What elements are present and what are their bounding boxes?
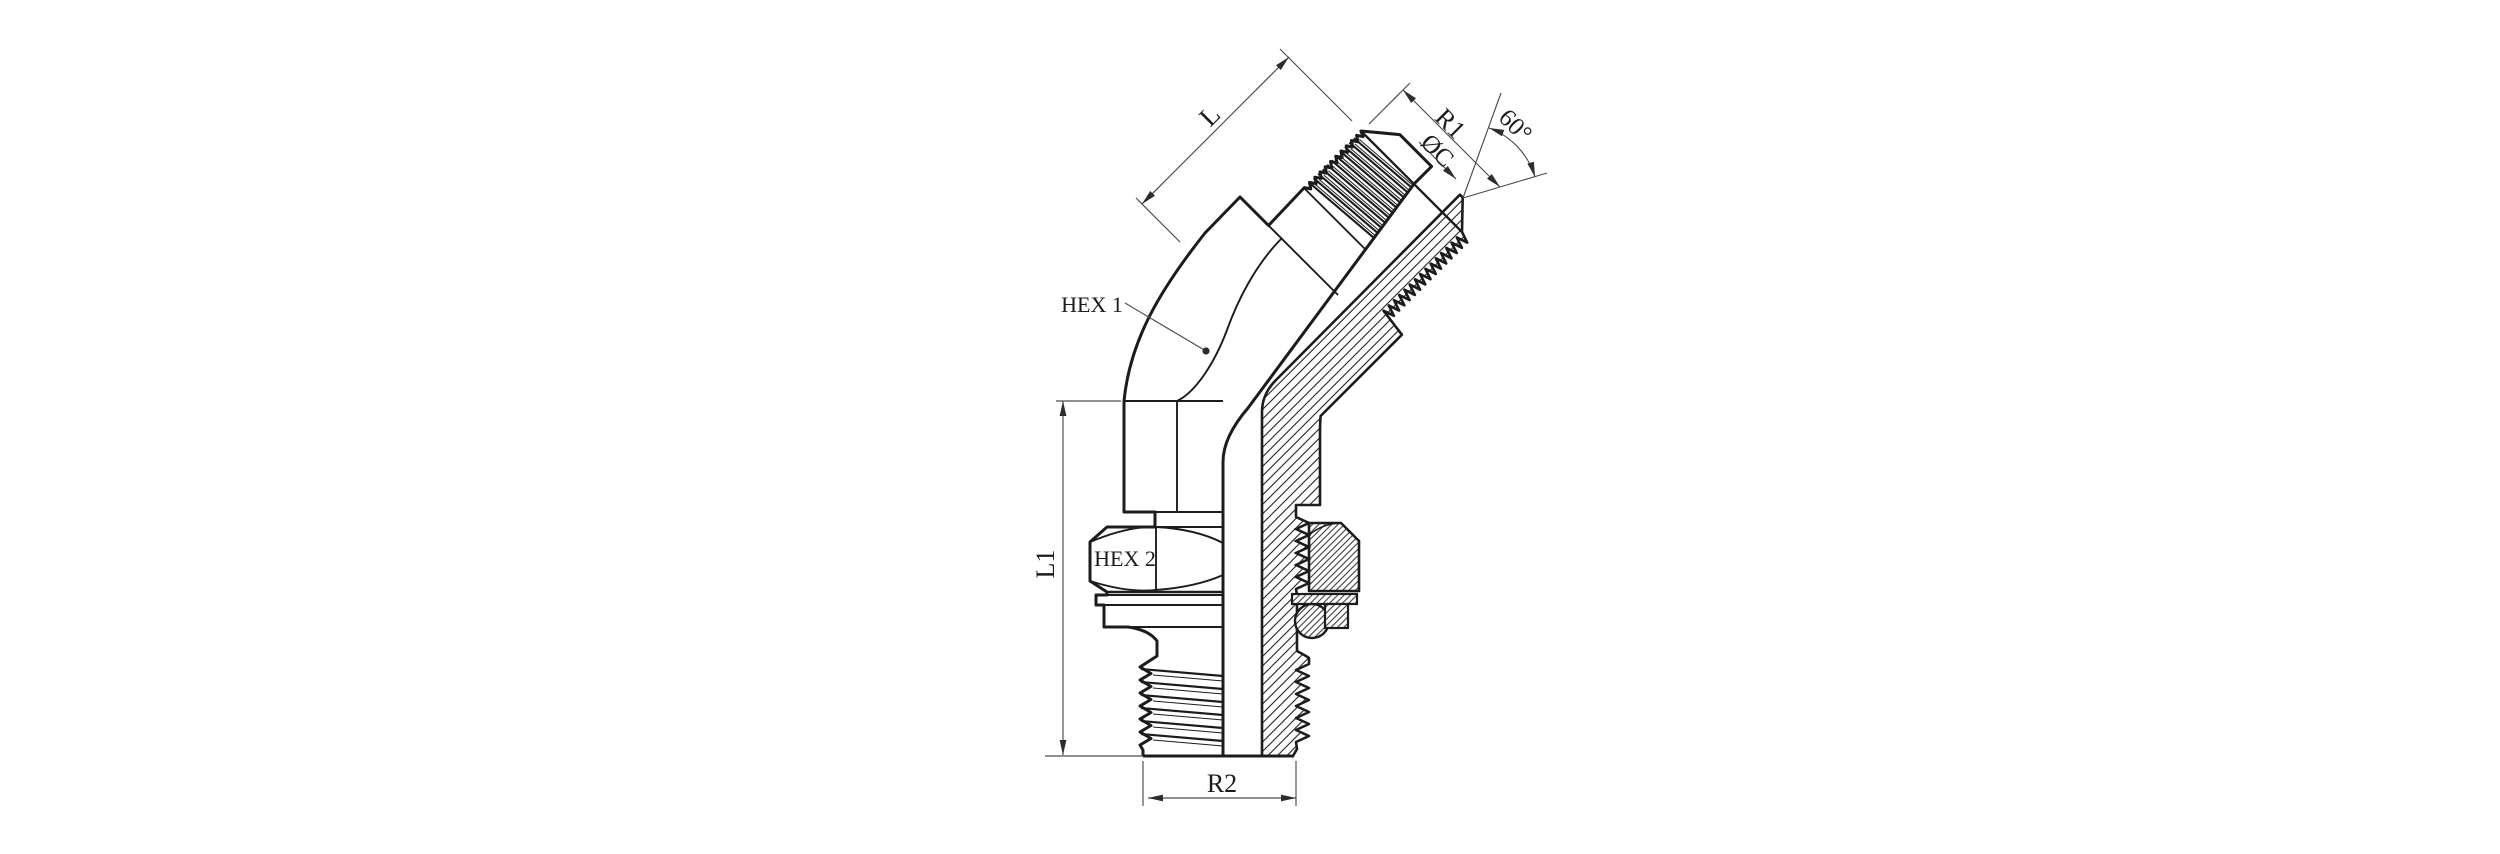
upper-thread-lines [1309, 138, 1412, 238]
locknut-section [1309, 523, 1359, 591]
seal-retainer-section [1325, 604, 1348, 628]
dimension-label-l1: L1 [1033, 550, 1059, 579]
fitting-technical-drawing [0, 0, 2500, 854]
callout-label-hex2: HEX 2 [1094, 548, 1156, 570]
locknut-thread-interface [1296, 517, 1309, 589]
washer-section [1292, 594, 1357, 604]
technical-drawing-page: L R1 ØC 60° HEX 1 HEX 2 L1 R2 [0, 0, 2500, 854]
callout-label-hex1: HEX 1 [1061, 294, 1123, 316]
hex1-leader-dot [1202, 347, 1209, 354]
section-cut-wall [1262, 195, 1467, 756]
dimension-label-r2: R2 [1207, 771, 1237, 797]
lower-thread-lines [1141, 669, 1223, 746]
